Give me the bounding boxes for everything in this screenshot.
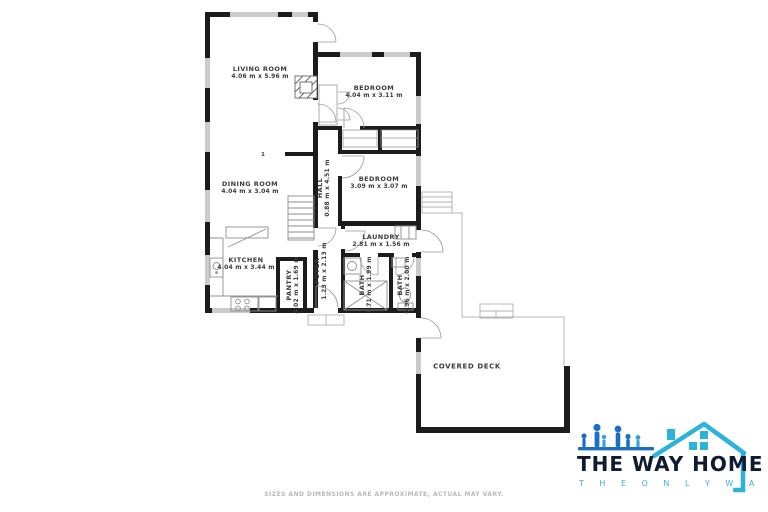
disclaimer-text: SIZES AND DIMENSIONS ARE APPROXIMATE, AC…	[0, 491, 768, 498]
counter-icon	[226, 227, 268, 238]
room-label-bath-1: BATH 1.71 m x 1.99 m	[358, 256, 374, 313]
room-label-covered-deck: COVERED DECK	[433, 362, 501, 371]
room-label-kitchen: KITCHEN 4.04 m x 3.44 m	[217, 256, 274, 272]
stairs-icon	[288, 196, 314, 240]
logo: THE WAY HOME T H E O N L Y W A Y	[576, 416, 768, 502]
room-label-pantry: PANTRY 4.02 m x 1.69 m	[285, 256, 301, 313]
room-label-laundry: LAUNDRY 2.81 m x 1.56 m	[352, 233, 409, 249]
room-label-bedroom-1: BEDROOM 4.04 m x 3.11 m	[345, 84, 402, 100]
logo-tagline: T H E O N L Y W A Y	[579, 479, 768, 488]
room-label-hall: HALL 0.88 m x 4.51 m	[316, 159, 332, 216]
room-label-foyer: FOYER 1.23 m x 2.13 m	[313, 242, 329, 299]
porch-step-icon	[308, 315, 344, 325]
fireplace-icon	[295, 76, 317, 98]
room-label-living-room: LIVING ROOM 4.06 m x 5.96 m	[231, 65, 288, 81]
deck-steps-icon	[480, 304, 513, 318]
room-label-bath-2: BATH 0.96 m x 2.00 m	[396, 256, 412, 313]
floorplan-page: LIVING ROOM 4.06 m x 5.96 m BEDROOM 4.04…	[0, 0, 768, 512]
level-marker: 1	[261, 152, 265, 158]
deck-outline	[452, 192, 564, 366]
room-label-dining-room: DINING ROOM 4.04 m x 3.04 m	[221, 180, 278, 196]
family-icon	[578, 424, 654, 451]
room-label-bedroom-2: BEDROOM 3.09 m x 3.07 m	[350, 175, 407, 191]
exterior-steps-icon	[422, 192, 452, 213]
logo-title: THE WAY HOME	[577, 452, 767, 476]
